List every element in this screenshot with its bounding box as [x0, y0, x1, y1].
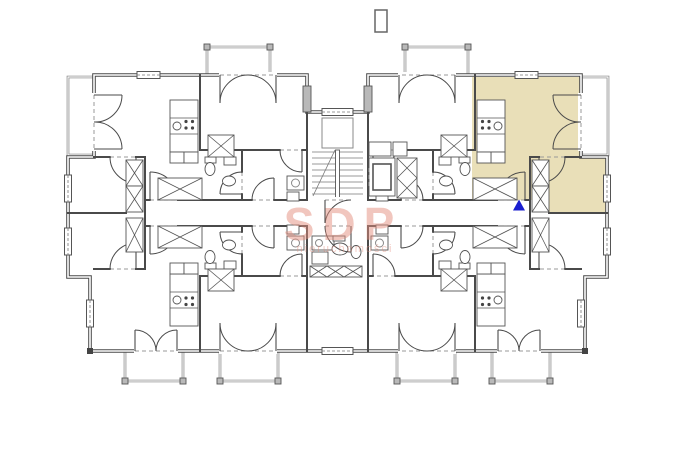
- terrace-left: [68, 77, 94, 155]
- terrace-right: [581, 77, 608, 155]
- roof-vent: [375, 10, 387, 32]
- balcony-top-left: [204, 44, 273, 75]
- corner-mark: [582, 348, 588, 354]
- unit-entrance-marker[interactable]: [513, 200, 525, 211]
- terrace-doors-left: [91, 93, 122, 151]
- window: [578, 300, 585, 327]
- wardrobe-column-right: [532, 160, 549, 252]
- window: [604, 175, 611, 202]
- window: [604, 228, 611, 255]
- window: [322, 348, 353, 355]
- lower-wardrobe-strip: [310, 266, 362, 277]
- entrance-post: [364, 86, 372, 112]
- bottom-doors-right: [497, 330, 541, 354]
- window: [65, 228, 72, 255]
- window: [322, 109, 353, 116]
- elevator: [369, 158, 395, 196]
- window: [87, 300, 94, 327]
- corner-mark: [87, 348, 93, 354]
- balcony-top-right: [402, 44, 471, 75]
- window: [515, 72, 538, 79]
- bottom-doors-left: [134, 330, 178, 354]
- balcony-bottom-3: [394, 351, 458, 384]
- staircase: [312, 118, 363, 198]
- entrance-post: [303, 86, 311, 112]
- window: [137, 72, 160, 79]
- balcony-bottom-1: [122, 351, 186, 384]
- floor-plan-svg: SDP nieruchomości: [0, 0, 684, 452]
- watermark: SDP nieruchomości: [284, 198, 403, 255]
- balcony-bottom-2: [217, 351, 281, 384]
- balcony-bottom-4: [489, 351, 553, 384]
- window: [65, 175, 72, 202]
- wardrobe-column-left: [126, 160, 143, 252]
- floor-plan-screenshot: SDP nieruchomości: [0, 0, 684, 452]
- watermark-subtitle: nieruchomości: [297, 243, 394, 255]
